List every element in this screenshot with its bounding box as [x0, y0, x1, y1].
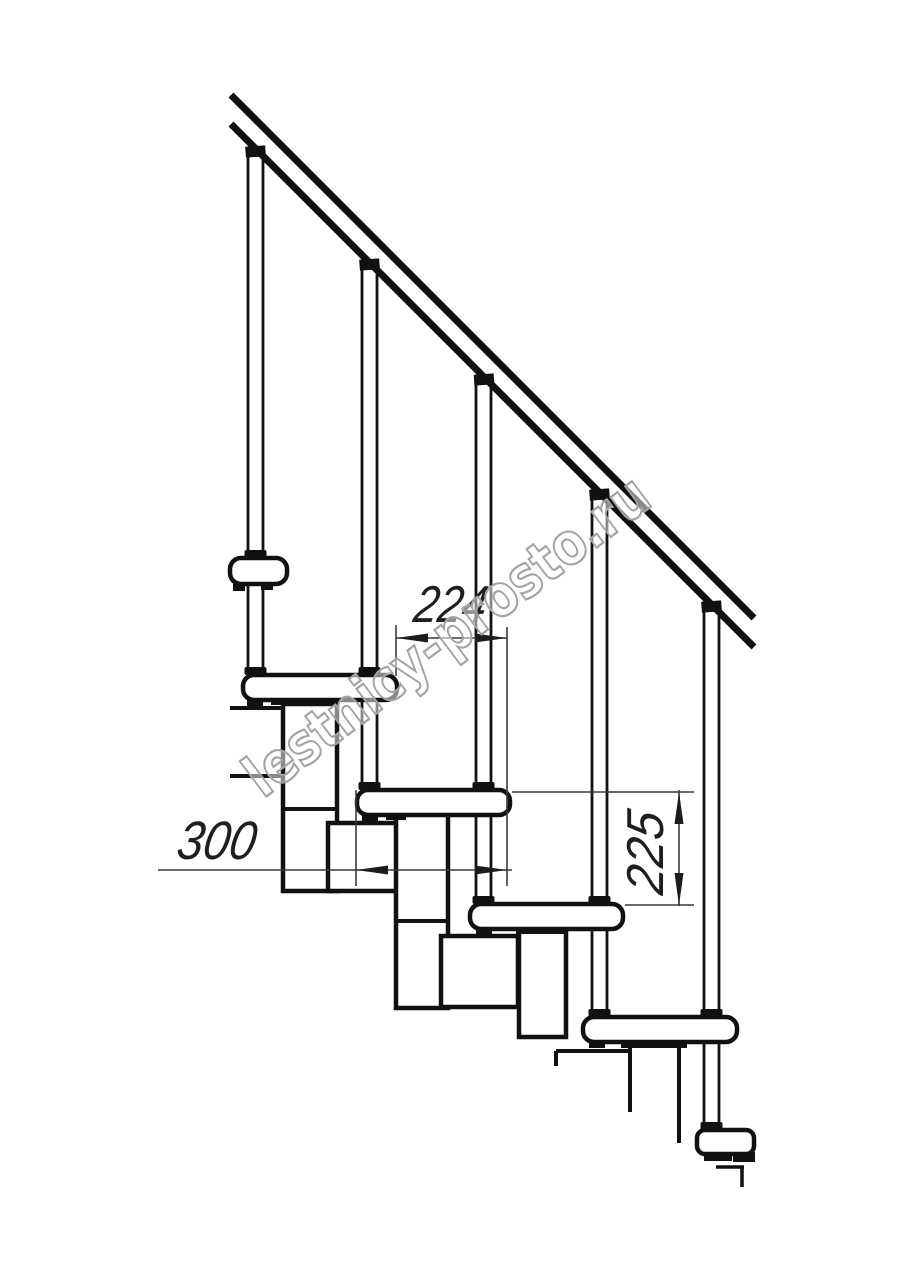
rod-collar — [359, 782, 381, 790]
module-connector-1 — [328, 823, 403, 891]
tread-foot — [516, 927, 566, 934]
rod-collar — [701, 1122, 723, 1130]
tread-foot — [476, 927, 492, 934]
tread-foot — [386, 813, 406, 820]
arrowhead-down — [675, 873, 684, 905]
tread-foot — [247, 698, 263, 706]
rod-collar — [701, 1009, 723, 1017]
handrail-upper-line — [231, 95, 754, 618]
dimension-label-riser: 225 — [617, 805, 675, 899]
drawing-svg: 224 300 225 lestnicy-prosto.ru — [0, 0, 914, 1280]
rod-collar — [245, 550, 267, 558]
tread-5-stub — [697, 1130, 754, 1154]
tread-foot — [271, 698, 291, 705]
rod-collar — [473, 782, 495, 790]
dimension-label-depth: 300 — [173, 810, 262, 871]
bracket-foot — [261, 584, 273, 590]
tread-foot — [589, 1040, 605, 1048]
tread-3 — [470, 904, 623, 929]
tread-foot — [621, 1041, 687, 1048]
rod-collar — [589, 896, 611, 904]
arrowhead-up — [675, 792, 684, 824]
rail-cap-2 — [359, 258, 380, 270]
bracket-foot — [233, 584, 245, 591]
rod-collar — [245, 667, 267, 675]
baluster-5 — [704, 609, 719, 1130]
rail-cap-1 — [245, 145, 266, 157]
rod-collar — [473, 896, 495, 904]
module-riser-3 — [519, 927, 566, 1037]
rail-cap-5 — [701, 600, 722, 612]
landing-tread-end — [230, 558, 287, 584]
tread-foot — [733, 1152, 755, 1162]
staircase-drawing: 224 300 225 lestnicy-prosto.ru — [0, 0, 914, 1280]
rod-collar — [589, 1009, 611, 1017]
tread-foot — [704, 1154, 732, 1161]
baluster-4 — [592, 496, 607, 1017]
baluster-1 — [248, 152, 263, 675]
tread-foot — [362, 813, 378, 821]
module-connector-2 — [441, 936, 518, 1007]
tread-4 — [583, 1017, 737, 1042]
rail-cap-3 — [474, 373, 495, 385]
tread-2 — [357, 790, 510, 815]
